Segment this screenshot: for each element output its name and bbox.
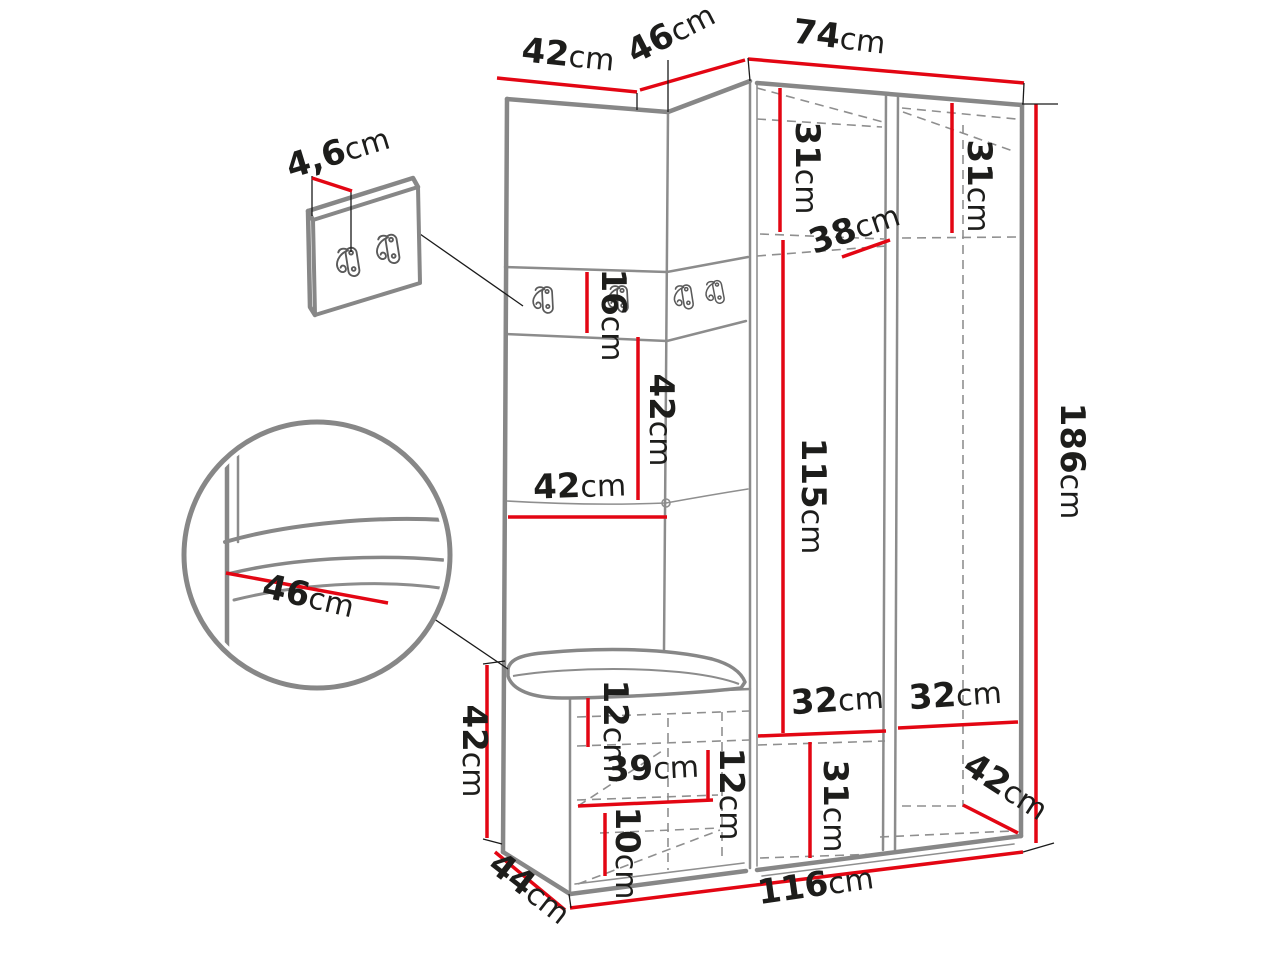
dim-line-left-section-width [497,78,637,92]
dim-label-corner-section-width: 46cm [620,0,721,72]
dim-label-left-section-width: 42cm [520,30,617,80]
dim-label-bottom-shelf-height: 31cm [815,759,855,852]
dim-label-wardrobe-width: 74cm [791,12,888,63]
dim-label-left-bottom-shelf-width: 32cm [789,677,885,723]
dim-line-corner-section-width [640,60,745,90]
dim-line-right-bottom-shelf-width [898,722,1018,728]
dim-label-right-top-shelf-height: 31cm [959,139,999,232]
dim-label-hanging-space-height: 115cm [793,438,833,555]
dim-label-left-top-shelf-height: 31cm [787,121,827,214]
dim-label-back-panel-height: 42cm [641,373,681,466]
dim-label-bench-bottom-gap: 10cm [607,806,647,899]
dim-label-total-width: 116cm [755,857,876,913]
dim-label-back-panel-width: 42cm [532,464,626,507]
hook-board-detail [308,176,523,315]
bench-corner-detail [184,420,508,692]
dim-label-bench-inner-width: 39cm [605,746,700,791]
dim-label-bench-right-gap: 12cm [711,747,751,840]
dim-label-hook-strip-height: 16cm [593,268,633,361]
dim-line-hook-board-thickness [312,178,352,191]
dim-label-hook-board-thickness: 4,6cm [281,118,394,187]
dim-label-right-bottom-shelf-width: 32cm [907,672,1003,718]
dim-line-bench-inner-width [578,800,713,806]
dim-label-bottom-depth: 42cm [956,745,1056,829]
dim-line-left-bottom-shelf-width [758,731,886,736]
furniture-dimension-diagram: 42cm 46cm 74cm 4,6cm 31cm 31cm 38cm 16cm… [0,0,1280,960]
dim-label-bench-height: 42cm [454,704,494,797]
dim-label-total-height: 186cm [1052,403,1092,520]
dim-line-wardrobe-width [748,59,1024,83]
